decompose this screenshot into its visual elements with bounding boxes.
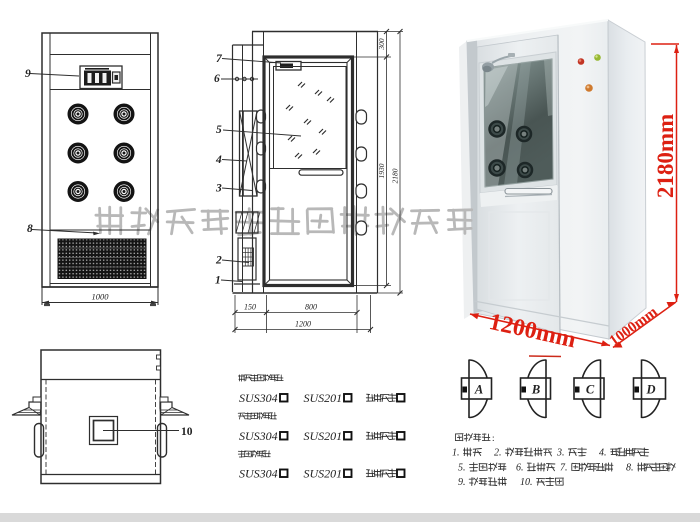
svg-text:9.: 9. bbox=[458, 477, 466, 488]
svg-text:SUS304: SUS304 bbox=[239, 429, 278, 443]
svg-text:1930: 1930 bbox=[377, 163, 386, 178]
svg-text::: : bbox=[492, 433, 495, 443]
svg-text:4.: 4. bbox=[599, 448, 607, 459]
svg-text:2.: 2. bbox=[494, 448, 502, 459]
svg-text:SUS304: SUS304 bbox=[239, 467, 278, 481]
svg-text:2180: 2180 bbox=[391, 168, 400, 183]
svg-text:1000: 1000 bbox=[92, 292, 110, 302]
svg-text:8.: 8. bbox=[626, 463, 634, 474]
svg-text:10.: 10. bbox=[520, 477, 533, 488]
svg-text:SUS201: SUS201 bbox=[304, 429, 343, 443]
svg-text:5.: 5. bbox=[458, 463, 466, 474]
svg-text:150: 150 bbox=[244, 303, 256, 312]
svg-text:2: 2 bbox=[215, 255, 222, 267]
svg-text:SUS304: SUS304 bbox=[239, 391, 278, 405]
svg-text:6.: 6. bbox=[516, 463, 524, 474]
svg-text:1200: 1200 bbox=[295, 320, 311, 329]
svg-text:3: 3 bbox=[215, 183, 222, 195]
svg-text:5: 5 bbox=[216, 124, 222, 136]
svg-text:D: D bbox=[645, 383, 655, 397]
svg-text:B: B bbox=[531, 383, 540, 397]
svg-text:2180mm: 2180mm bbox=[653, 114, 678, 198]
svg-text:800: 800 bbox=[305, 303, 317, 312]
svg-text:9: 9 bbox=[25, 68, 31, 80]
svg-text:SUS201: SUS201 bbox=[304, 467, 343, 481]
svg-text:7.: 7. bbox=[560, 463, 568, 474]
svg-text:SUS201: SUS201 bbox=[304, 391, 343, 405]
svg-text:10: 10 bbox=[181, 426, 193, 438]
svg-text:C: C bbox=[586, 383, 595, 397]
svg-text:3.: 3. bbox=[556, 448, 565, 459]
svg-text:300: 300 bbox=[377, 38, 386, 51]
svg-text:A: A bbox=[474, 383, 483, 397]
svg-text:6: 6 bbox=[214, 73, 220, 85]
svg-text:1.: 1. bbox=[452, 448, 460, 459]
svg-text:1: 1 bbox=[215, 275, 221, 287]
svg-text:8: 8 bbox=[27, 223, 33, 235]
svg-text:7: 7 bbox=[216, 53, 223, 65]
svg-text:4: 4 bbox=[215, 154, 222, 166]
